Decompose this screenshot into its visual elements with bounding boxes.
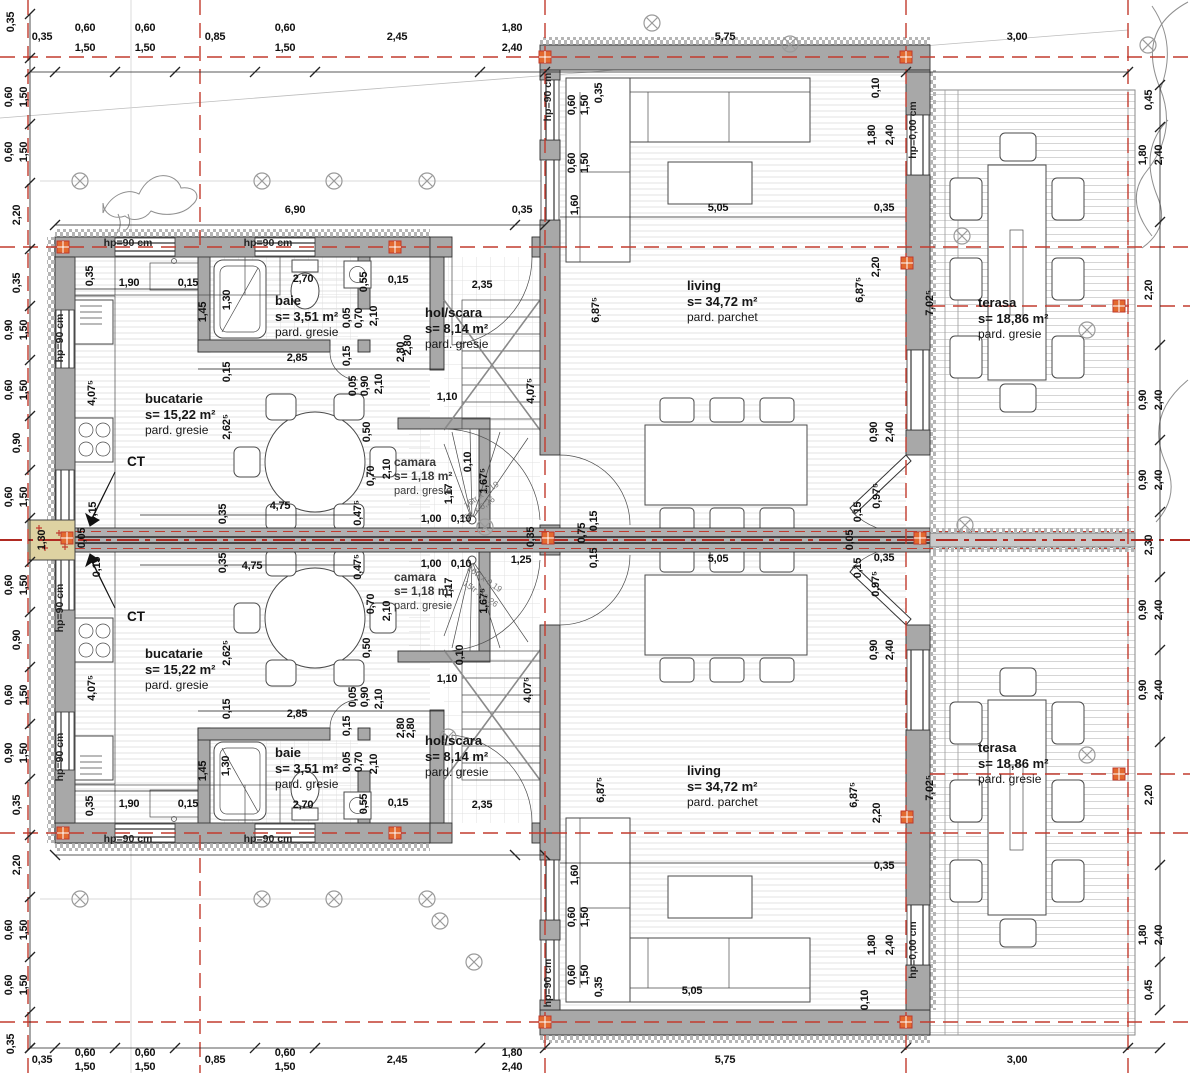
dim-label: 1,50 [275, 1061, 296, 1073]
dim-label: 0,90 [359, 687, 371, 708]
room-label: living [687, 763, 721, 778]
dim-label: 0,15 [221, 362, 233, 383]
room-label: pard. gresie [425, 337, 489, 351]
dim-label: 1,00 [421, 558, 442, 570]
dim-label: 1,10 [437, 391, 458, 403]
room-label: pard. gresie [394, 485, 452, 497]
dim-label: 0,55 [358, 794, 370, 815]
dim-label: 2,40 [1153, 925, 1165, 946]
crossed-circle-symbol [644, 15, 660, 31]
dim-label: 1,30 [220, 756, 232, 777]
dim-label: 0,35 [11, 795, 23, 816]
dim-label: 0,15 [178, 277, 199, 289]
dim-label: 7,02⁵ [924, 290, 936, 316]
dim-label: 4,07⁵ [86, 675, 98, 701]
dim-label: 2,10 [368, 754, 380, 775]
dim-label: 2,40 [1153, 680, 1165, 701]
dim-label: 0,15 [388, 274, 409, 286]
dim-label: 2,20 [871, 803, 883, 824]
dim-label: 0,35 [593, 83, 605, 104]
room-label: pard. gresie [275, 325, 339, 339]
dim-label: 1,50 [579, 907, 591, 928]
dim-label: 0,60 [566, 153, 578, 174]
coffee-table [668, 162, 752, 204]
dim-label: 0,60 [275, 22, 296, 34]
dim-label: 6,87⁵ [590, 297, 602, 323]
dim-label: 1,90 [119, 798, 140, 810]
window [541, 160, 559, 220]
room-label: pard. gresie [275, 777, 339, 791]
dim-label: 0,35 [217, 504, 229, 525]
dim-label: 0,60 [3, 87, 15, 108]
annotation-label: hp=90 cm [54, 584, 66, 633]
dim-label: 2,10 [381, 459, 393, 480]
room-label: s= 15,22 m² [145, 662, 216, 677]
dim-label: 0,15 [588, 511, 600, 532]
dim-label: 2,20 [11, 205, 23, 226]
dim-label: 2,40 [1153, 600, 1165, 621]
dim-label: 3,00 [1007, 1054, 1028, 1066]
dim-label: 1,10 [437, 673, 458, 685]
dim-label: 1,50 [18, 975, 30, 996]
dim-label: 2,40 [502, 42, 523, 54]
dim-label: 0,47⁵ [352, 500, 364, 526]
dim-label: 1,50 [75, 42, 96, 54]
dim-label: 0,15 [178, 798, 199, 810]
dim-label: 0,35 [874, 202, 895, 214]
dim-label: 0,05 [76, 528, 88, 549]
dim-label: 6,87⁵ [595, 777, 607, 803]
dim-label: 2,40 [884, 422, 896, 443]
dim-label: 0,60 [75, 1047, 96, 1059]
dim-label: 0,35 [217, 553, 229, 574]
dim-label: 0,90 [868, 422, 880, 443]
dim-label: 0,05 [341, 752, 353, 773]
dim-label: 0,60 [566, 965, 578, 986]
cooktop [75, 418, 113, 462]
dim-label: 6,90 [285, 204, 306, 216]
dim-label: 1,50 [135, 42, 156, 54]
crossed-circle-symbol [432, 913, 448, 929]
dim-label: 2,80 [402, 335, 414, 356]
axis-marker [901, 257, 913, 269]
room-label: s= 1,18 m² [394, 584, 452, 598]
dim-label: 0,60 [135, 22, 156, 34]
dim-label: 0,90 [1137, 470, 1149, 491]
dim-label: 1,80 [1137, 925, 1149, 946]
floorplan-canvas: 0,350,601,500,601,500,850,601,502,451,80… [0, 0, 1190, 1073]
axis-marker [914, 532, 926, 544]
dim-label: 2,40 [502, 1061, 523, 1073]
dim-label: 0,97⁵ [871, 483, 883, 509]
dim-label: 0,90 [1137, 680, 1149, 701]
dim-label: 0,45 [1143, 90, 1155, 111]
dim-label: 2,85 [287, 708, 308, 720]
dim-label: 2,35 [472, 799, 493, 811]
room-label: s= 1,18 m² [394, 469, 452, 483]
room-label: living [687, 278, 721, 293]
annotation-label: hp=90 cm [104, 237, 153, 249]
dim-label: 0,60 [135, 1047, 156, 1059]
room-label: pard. parchet [687, 795, 758, 809]
dim-label: 0,35 [512, 204, 533, 216]
dim-label: 1,50 [135, 1061, 156, 1073]
room-label: hol/scara [425, 305, 483, 320]
dim-label: 4,75 [242, 560, 263, 572]
room-label: pard. gresie [425, 765, 489, 779]
annotation-label: hp=90 cm [54, 314, 66, 363]
dining-table [645, 398, 807, 532]
annotation-label: hp=90 cm [104, 833, 153, 845]
axis-marker [61, 532, 73, 544]
dim-label: 0,60 [75, 22, 96, 34]
dim-label: 2,62⁵ [221, 414, 233, 440]
dim-label: 0,60 [3, 380, 15, 401]
dim-label: 0,60 [3, 685, 15, 706]
room-label: pard. gresie [978, 772, 1042, 786]
dim-label: 1,50 [18, 87, 30, 108]
dim-label: 3,00 [1007, 31, 1028, 43]
dim-label: 0,15 [588, 548, 600, 569]
axis-marker [901, 811, 913, 823]
dim-label: 0,35 [84, 796, 96, 817]
axis-marker [1113, 768, 1125, 780]
annotation-label: hp=0,00 cm [907, 101, 919, 159]
axis-marker [57, 241, 69, 253]
dim-label: 0,35 [593, 977, 605, 998]
dim-label: 0,35 [11, 273, 23, 294]
dim-label: 0,90 [868, 640, 880, 661]
dim-label: 0,60 [566, 95, 578, 116]
dim-label: 1,50 [18, 320, 30, 341]
dim-label: 0,15 [852, 558, 864, 579]
dim-label: 1,50 [18, 142, 30, 163]
annotation-label: CT [127, 454, 146, 469]
room-label: s= 8,14 m² [425, 321, 489, 336]
axis-marker [57, 827, 69, 839]
dim-label: 0,60 [3, 920, 15, 941]
dim-label: 0,05 [341, 308, 353, 329]
dim-label: 1,50 [18, 920, 30, 941]
dim-label: 1,80 [866, 125, 878, 146]
dim-label: 2,40 [884, 125, 896, 146]
dim-label: 2,40 [884, 640, 896, 661]
dim-label: 1,60 [569, 865, 581, 886]
dim-label: 2,62⁵ [221, 640, 233, 666]
dim-label: 1,80 [866, 935, 878, 956]
dim-label: 0,70 [365, 466, 377, 487]
dim-label: 0,50 [361, 638, 373, 659]
dim-label: 2,20 [1143, 785, 1155, 806]
dim-label: 5,75 [715, 1054, 736, 1066]
dim-label: 0,15 [87, 502, 99, 523]
dim-label: 4,07⁵ [525, 378, 537, 404]
dim-label: 2,30 [1143, 535, 1155, 556]
dim-label: 0,90 [1137, 390, 1149, 411]
dim-label: 5,05 [708, 553, 729, 565]
dim-label: 2,85 [287, 352, 308, 364]
room-label: s= 15,22 m² [145, 407, 216, 422]
dim-label: 0,55 [358, 272, 370, 293]
dim-label: 2,45 [387, 1054, 408, 1066]
annotation-label: CT [127, 609, 146, 624]
dim-label: 1,45 [197, 302, 209, 323]
axis-marker [539, 51, 551, 63]
dim-label: 0,70 [353, 308, 365, 329]
dim-label: 0,60 [3, 575, 15, 596]
window [907, 350, 929, 430]
dim-label: 0,90 [3, 320, 15, 341]
dim-label: 0,15 [341, 346, 353, 367]
dim-label: 2,80 [395, 718, 407, 739]
room-label: pard. gresie [145, 678, 209, 692]
dim-label: 0,05 [347, 376, 359, 397]
annotation-label: hp=90 cm [542, 73, 554, 122]
room-label: terasa [978, 740, 1017, 755]
annotation-label: hp=90 cm [54, 733, 66, 782]
dim-label: 1,50 [579, 153, 591, 174]
room-label: camara [394, 455, 436, 469]
dim-label: 1,50 [579, 95, 591, 116]
dim-label: 1,30 [221, 290, 233, 311]
dim-label: 0,50 [361, 422, 373, 443]
room-label: baie [275, 293, 301, 308]
dim-label: 1,00 [421, 513, 442, 525]
dim-label: 0,35 [874, 860, 895, 872]
room-label: pard. parchet [687, 310, 758, 324]
fridge [75, 300, 113, 344]
dim-label: 0,10 [454, 645, 466, 666]
dim-label: 2,40 [884, 935, 896, 956]
room-label: hol/scara [425, 733, 483, 748]
axis-marker [389, 827, 401, 839]
annotation-label: hp=90 cm [542, 959, 554, 1008]
dim-label: 2,10 [373, 374, 385, 395]
room-label: s= 34,72 m² [687, 294, 758, 309]
dim-label: 0,35 [525, 527, 537, 548]
dim-label: 1,50 [275, 42, 296, 54]
dim-label: 5,75 [715, 31, 736, 43]
bird-sketch [103, 176, 197, 236]
dim-label: 0,70 [353, 752, 365, 773]
dim-label: 1,30 [36, 530, 48, 551]
crossed-circle-symbol [466, 954, 482, 970]
annotation-label: hp=0,00 cm [907, 921, 919, 979]
dim-label: 6,87⁵ [854, 277, 866, 303]
dim-label: 1,50 [75, 1061, 96, 1073]
dim-label: 0,70 [365, 594, 377, 615]
dim-label: 4,75 [270, 500, 291, 512]
room-label: terasa [978, 295, 1017, 310]
axis-marker [1113, 300, 1125, 312]
dim-label: 0,05 [844, 530, 856, 551]
dim-label: 1,50 [18, 380, 30, 401]
dim-label: 0,10 [859, 990, 871, 1011]
dim-label: 0,15 [91, 557, 103, 578]
dim-label: 0,60 [3, 142, 15, 163]
dim-label: 2,20 [11, 855, 23, 876]
dim-label: 1,80 [1137, 145, 1149, 166]
dim-label: 0,47⁵ [352, 554, 364, 580]
dim-label: 1,80 [502, 22, 523, 34]
dim-label: 0,10 [462, 452, 474, 473]
dim-label: 1,45 [197, 761, 209, 782]
dim-label: 1,90 [119, 277, 140, 289]
annotation-label: hp=90 cm [244, 237, 293, 249]
room-label: s= 18,86 m² [978, 311, 1049, 326]
dim-label: 6,87⁵ [848, 782, 860, 808]
axis-marker [389, 241, 401, 253]
dim-label: 1,50 [579, 965, 591, 986]
room-label: s= 18,86 m² [978, 756, 1049, 771]
dim-label: 5,05 [708, 202, 729, 214]
dim-label: 2,70 [293, 799, 314, 811]
dim-label: 0,75 [576, 523, 588, 544]
dim-label: 0,05 [347, 687, 359, 708]
dim-label: 0,15 [341, 716, 353, 737]
room-label: bucatarie [145, 391, 203, 406]
dim-label: 0,35 [5, 12, 17, 33]
dim-label: 1,25 [511, 554, 532, 566]
dim-label: 0,90 [11, 630, 23, 651]
room-label: baie [275, 745, 301, 760]
dim-label: 1,50 [18, 575, 30, 596]
dim-label: 0,90 [11, 433, 23, 454]
dim-label: 0,10 [870, 78, 882, 99]
room-label: s= 3,51 m² [275, 761, 339, 776]
dim-label: 0,60 [3, 487, 15, 508]
dim-label: 0,90 [3, 743, 15, 764]
room-label: s= 34,72 m² [687, 779, 758, 794]
dim-label: 1,60 [569, 195, 581, 216]
room-label: pard. gresie [394, 600, 452, 612]
room-label: camara [394, 570, 436, 584]
dim-label: 2,70 [293, 273, 314, 285]
room-label: bucatarie [145, 646, 203, 661]
dim-label: 4,07⁵ [522, 677, 534, 703]
dim-label: 1,50 [18, 487, 30, 508]
dim-label: 0,85 [205, 31, 226, 43]
dim-label: 0,35 [32, 31, 53, 43]
dim-label: 4,07⁵ [86, 380, 98, 406]
room-label: s= 8,14 m² [425, 749, 489, 764]
dim-label: 0,35 [5, 1034, 17, 1055]
dim-label: 0,45 [1143, 980, 1155, 1001]
dim-label: 0,60 [3, 975, 15, 996]
dim-label: 0,60 [275, 1047, 296, 1059]
dim-label: 0,15 [221, 699, 233, 720]
dim-label: 0,35 [874, 552, 895, 564]
dim-label: 1,50 [18, 685, 30, 706]
room-label: s= 3,51 m² [275, 309, 339, 324]
dim-label: 5,05 [682, 985, 703, 997]
dim-label: 0,35 [32, 1054, 53, 1066]
window [56, 470, 74, 524]
dim-label: 1,50 [18, 743, 30, 764]
dim-label: 2,40 [1153, 390, 1165, 411]
dim-label: 0,60 [566, 907, 578, 928]
dim-label: 1,80 [502, 1047, 523, 1059]
dim-label: 2,10 [381, 601, 393, 622]
dim-label: 2,20 [1143, 280, 1155, 301]
dim-label: 2,40 [1153, 145, 1165, 166]
axis-marker [900, 51, 912, 63]
axis-marker [542, 532, 554, 544]
axis-marker [539, 1016, 551, 1028]
dim-label: 2,35 [472, 279, 493, 291]
room-label: pard. gresie [145, 423, 209, 437]
dim-label: 0,85 [205, 1054, 226, 1066]
dim-label: 0,97⁵ [870, 571, 882, 597]
dim-label: 0,35 [84, 266, 96, 287]
dim-label: 0,15 [388, 797, 409, 809]
dim-label: 2,40 [1153, 470, 1165, 491]
dim-label: 7,02⁵ [924, 775, 936, 801]
dim-label: 2,10 [368, 306, 380, 327]
dim-label: 0,90 [359, 376, 371, 397]
dim-label: 0,15 [852, 502, 864, 523]
room-label: pard. gresie [978, 327, 1042, 341]
axis-marker [900, 1016, 912, 1028]
dim-label: 2,10 [373, 689, 385, 710]
dim-label: 2,45 [387, 31, 408, 43]
dim-label: 0,90 [1137, 600, 1149, 621]
dim-label: 2,20 [870, 257, 882, 278]
annotation-label: hp=90 cm [244, 833, 293, 845]
